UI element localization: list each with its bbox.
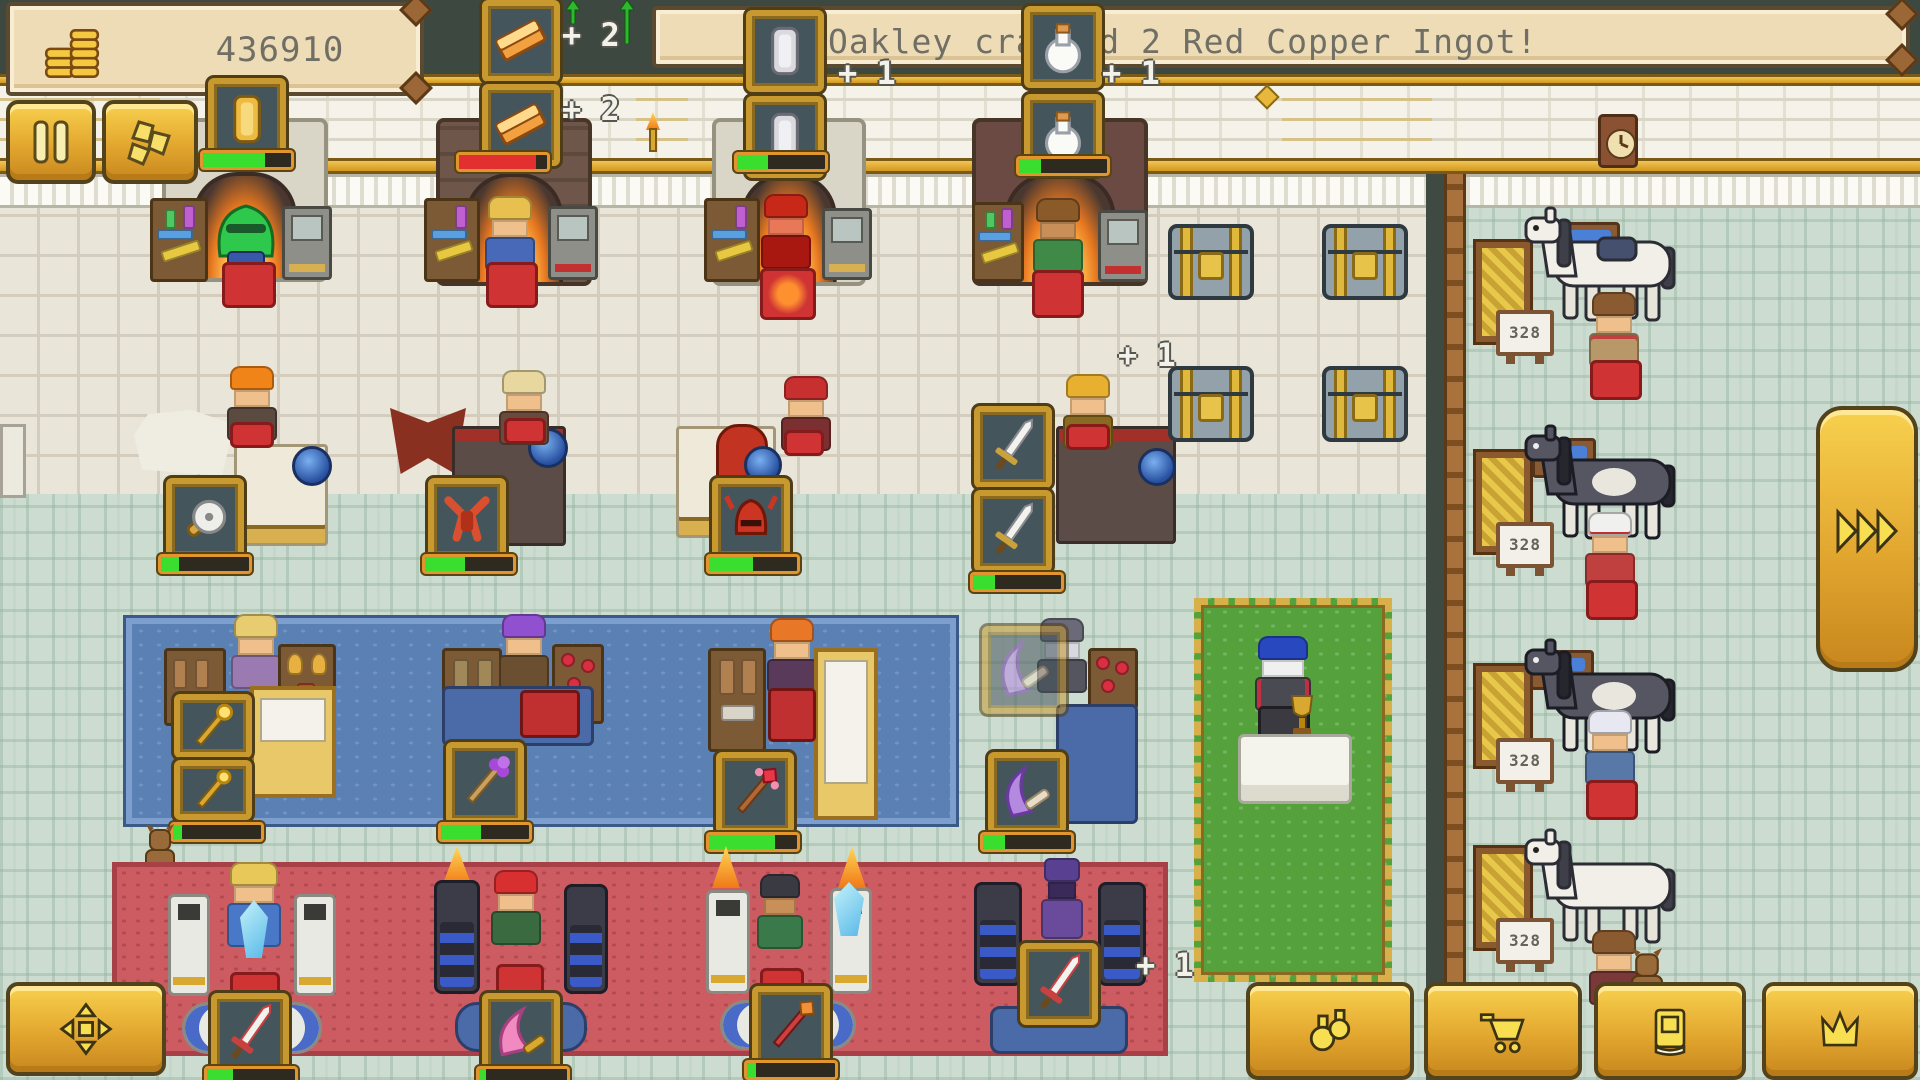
smelter-1-progress bbox=[200, 150, 294, 170]
cart-icon bbox=[1472, 1002, 1534, 1060]
gold-scepter-icon bbox=[180, 766, 246, 814]
bench-3-item-frame[interactable] bbox=[712, 478, 790, 560]
tan-wall-right bbox=[1282, 86, 1432, 158]
enchant-2-progress bbox=[476, 1066, 570, 1080]
magic-4-progress bbox=[980, 832, 1074, 852]
magic-3-progress bbox=[706, 832, 800, 852]
smelter-3-worker bbox=[758, 194, 814, 269]
side-machine bbox=[822, 208, 872, 280]
worker-stool bbox=[222, 262, 276, 308]
smelter-3-progress bbox=[734, 152, 828, 172]
copper-ingot-icon bbox=[488, 90, 554, 160]
smelter-3-item-frame[interactable] bbox=[746, 10, 824, 92]
smelter-2-item-frame[interactable] bbox=[482, 0, 560, 82]
bench-4-item-frame[interactable] bbox=[974, 490, 1052, 572]
slime-worker bbox=[212, 194, 280, 270]
storage-chest[interactable] bbox=[1322, 224, 1408, 300]
worker-seat bbox=[1066, 424, 1110, 450]
smelter-2-progress bbox=[456, 152, 550, 172]
enchant-2-worker bbox=[488, 870, 544, 945]
ingot-shelf bbox=[972, 202, 1024, 282]
smelter-2-worker bbox=[482, 196, 538, 271]
silver-bar-icon bbox=[752, 16, 818, 86]
stable-divider bbox=[1426, 174, 1444, 1080]
enchant-3-progress bbox=[744, 1060, 838, 1080]
side-machine bbox=[1098, 210, 1148, 282]
heart-shelf bbox=[1088, 648, 1138, 710]
groom-stool bbox=[1590, 360, 1642, 400]
potions-button[interactable] bbox=[1246, 982, 1414, 1080]
book-icon bbox=[1642, 1001, 1698, 1061]
magic-1-item-frame[interactable] bbox=[174, 694, 252, 758]
bench-2-item-frame[interactable] bbox=[428, 478, 506, 560]
worker-seat bbox=[784, 430, 824, 456]
purple-wand-icon bbox=[452, 748, 518, 818]
bench-fan bbox=[1138, 448, 1176, 486]
worker-stool bbox=[486, 262, 538, 308]
pink-blade-icon bbox=[488, 999, 554, 1069]
bench-fan bbox=[292, 446, 332, 486]
money-value: 436910 bbox=[150, 30, 410, 70]
enchant-cannon bbox=[564, 884, 608, 994]
smelter-4-worker bbox=[1030, 198, 1086, 273]
stall-sign: 328 bbox=[1496, 522, 1554, 568]
magic-1-loom[interactable] bbox=[250, 686, 336, 798]
ingot-shelf bbox=[150, 198, 208, 282]
flask-icon bbox=[1030, 12, 1096, 82]
ore-pile-icon bbox=[123, 116, 177, 168]
lounge-table bbox=[1238, 734, 1352, 804]
magic-1-progress bbox=[170, 822, 264, 842]
worker-seat bbox=[230, 422, 274, 448]
red-wand-icon bbox=[722, 758, 788, 828]
white-armor-piece bbox=[134, 410, 234, 476]
enchant-4-item-frame[interactable] bbox=[1020, 943, 1098, 1025]
side-machine bbox=[282, 206, 332, 280]
stable-fence bbox=[1444, 174, 1466, 1080]
bench-2-progress bbox=[422, 554, 516, 574]
red-armor-icon bbox=[434, 484, 500, 554]
magic-1-worker bbox=[228, 614, 284, 689]
enchant-4-golem bbox=[1038, 858, 1086, 939]
red-helmet-icon bbox=[718, 484, 784, 554]
pause-button[interactable] bbox=[6, 100, 96, 184]
enchant-cannon bbox=[974, 882, 1022, 986]
figure-shelf bbox=[708, 648, 766, 752]
enchant-pillar bbox=[706, 890, 750, 994]
pause-icon bbox=[29, 118, 73, 166]
craft-gain-popup: + 1 bbox=[1102, 54, 1160, 92]
copper-ingot-icon bbox=[488, 6, 554, 76]
wall-torch-icon bbox=[644, 112, 662, 152]
resources-button[interactable] bbox=[102, 100, 198, 184]
gain-arrow-icon bbox=[620, 0, 634, 44]
red-staff-icon bbox=[758, 992, 824, 1062]
storage-chest[interactable] bbox=[1322, 366, 1408, 442]
game-viewport: + 2 + 2 + 1 + 1 bbox=[0, 0, 1920, 1080]
bench-4-item-frame[interactable] bbox=[974, 406, 1052, 488]
worker-stool bbox=[760, 268, 816, 320]
magic-3-worker bbox=[764, 618, 820, 693]
craft-gain-popup: + 1 bbox=[1136, 946, 1194, 984]
cutoff-bench-left bbox=[0, 424, 26, 498]
bench-1-item-frame[interactable] bbox=[166, 478, 244, 560]
white-sword-icon bbox=[1026, 949, 1092, 1019]
triple-chevron-icon bbox=[1834, 506, 1900, 556]
magic-2-progress bbox=[438, 822, 532, 842]
fast-forward-button[interactable] bbox=[1816, 406, 1918, 672]
white-sword-icon bbox=[217, 999, 283, 1069]
gold-scepter-icon bbox=[180, 700, 246, 752]
groom-stool bbox=[1586, 580, 1638, 620]
smelter-4-progress bbox=[1016, 156, 1110, 176]
wall-clock-icon bbox=[1598, 114, 1638, 168]
saw-blade-icon bbox=[172, 484, 238, 554]
storage-chest[interactable] bbox=[1168, 224, 1254, 300]
move-button[interactable] bbox=[6, 982, 166, 1076]
groom-stool bbox=[1586, 780, 1638, 820]
stable-groom bbox=[1582, 512, 1638, 587]
white-sword-icon bbox=[980, 412, 1046, 482]
stall-sign: 328 bbox=[1496, 738, 1554, 784]
worker-stool bbox=[1032, 270, 1084, 318]
stall-sign: 328 bbox=[1496, 918, 1554, 964]
craft-gain-popup: + 2 bbox=[562, 90, 620, 128]
red-machine bbox=[768, 688, 816, 742]
smelter-4-item-frame[interactable] bbox=[1024, 6, 1102, 88]
purple-bow-icon bbox=[994, 758, 1060, 828]
white-sword-icon bbox=[980, 496, 1046, 566]
stall-sign: 328 bbox=[1496, 310, 1554, 356]
ingot-shelf bbox=[704, 198, 760, 282]
ranking-button[interactable] bbox=[1762, 982, 1918, 1080]
storage-chest[interactable] bbox=[1168, 366, 1254, 442]
stable-groom bbox=[1586, 292, 1642, 367]
journal-button[interactable] bbox=[1594, 982, 1746, 1080]
purple-bow-icon bbox=[988, 632, 1060, 708]
enchant-2-item-frame[interactable] bbox=[482, 993, 560, 1075]
magic-4-item-frame[interactable] bbox=[988, 752, 1066, 834]
bench-3-progress bbox=[706, 554, 800, 574]
enchant-3-worker bbox=[754, 874, 806, 949]
magic-3-bench[interactable] bbox=[814, 648, 878, 820]
stable-groom bbox=[1582, 710, 1638, 785]
crown-icon bbox=[1811, 1003, 1869, 1059]
enchant-1-progress bbox=[204, 1066, 298, 1080]
enchant-cannon bbox=[434, 880, 480, 994]
bench-4-progress bbox=[970, 572, 1064, 592]
craft-gain-popup: + 1 bbox=[838, 54, 896, 92]
move-arrows-icon bbox=[56, 999, 116, 1059]
craft-gain-popup: + 1 bbox=[1118, 336, 1176, 374]
worker-seat bbox=[504, 418, 546, 444]
shop-button[interactable] bbox=[1424, 982, 1582, 1080]
enchant-1-item-frame[interactable] bbox=[211, 993, 289, 1075]
side-machine bbox=[548, 206, 598, 280]
magic-3-item-frame[interactable] bbox=[716, 752, 794, 834]
coin-stack-icon bbox=[38, 20, 104, 86]
red-machine bbox=[520, 690, 580, 738]
enchant-3-item-frame[interactable] bbox=[752, 986, 830, 1068]
enchant-pillar bbox=[294, 894, 336, 996]
magic-2-item-frame[interactable] bbox=[446, 742, 524, 824]
enchant-pillar bbox=[168, 894, 210, 996]
magic-4-table[interactable] bbox=[1056, 704, 1138, 824]
magic-4-crafting-frame bbox=[982, 626, 1066, 714]
smelter-1-item-frame[interactable] bbox=[208, 78, 286, 160]
bench-1-progress bbox=[158, 554, 252, 574]
ingot-shelf bbox=[424, 198, 480, 282]
notification-text: Oakley crafted 2 Red Copper Ingot! bbox=[828, 22, 1538, 61]
flasks-icon bbox=[1299, 1001, 1361, 1061]
gold-bar-icon bbox=[214, 84, 280, 154]
craft-gain-popup: + 2 bbox=[562, 16, 620, 54]
magic-1-item-frame[interactable] bbox=[174, 760, 252, 820]
magic-2-worker bbox=[496, 614, 552, 689]
